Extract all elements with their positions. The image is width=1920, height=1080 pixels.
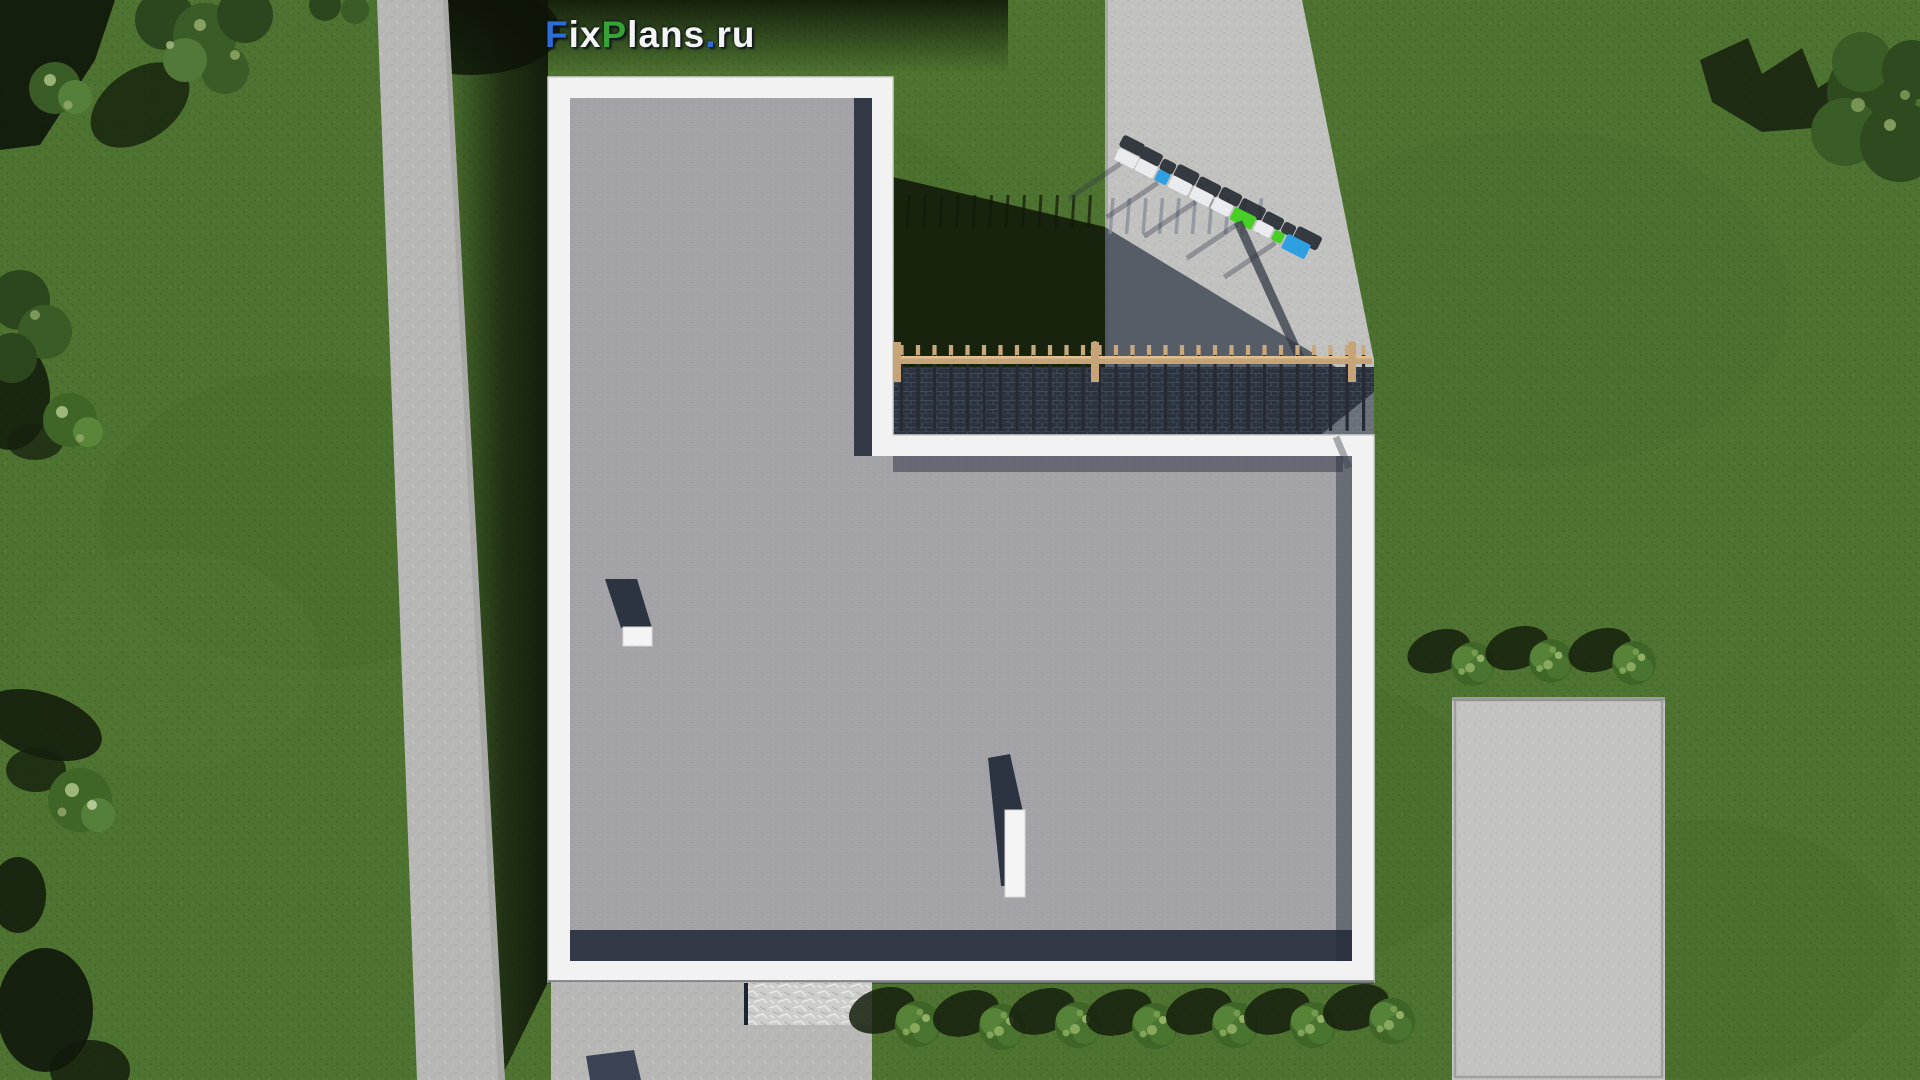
logo-segment: lans xyxy=(627,14,705,55)
joint-shadow-line xyxy=(744,983,748,1025)
pad-texture xyxy=(1452,697,1665,1080)
roof-shadow-south-strip xyxy=(570,930,1352,961)
site-logo: FixPlans.ru xyxy=(545,14,755,56)
aerial-render xyxy=(0,0,1920,1080)
logo-segment: P xyxy=(601,14,627,55)
fence-shadow-streaks-grass xyxy=(901,195,1099,228)
logo-segment: F xyxy=(545,14,569,55)
roof-shadow-right-strip xyxy=(1336,456,1352,961)
fence-rail-highlight xyxy=(893,356,1372,359)
fence-shadow-on-roof xyxy=(893,456,1343,472)
vent-cap xyxy=(623,627,652,646)
courtyard-south xyxy=(551,982,872,1080)
vent-cap xyxy=(1005,810,1025,897)
logo-segment: ix xyxy=(569,14,602,55)
logo-segment: ru xyxy=(716,14,755,55)
picket-fence xyxy=(893,341,1372,431)
logo-segment: . xyxy=(705,14,716,55)
roof-shadow-east-strip xyxy=(854,98,872,456)
render-viewport: FixPlans.ru xyxy=(0,0,1920,1080)
pad-top-edge xyxy=(1452,697,1665,701)
concrete-pad-southeast xyxy=(1452,697,1665,1080)
